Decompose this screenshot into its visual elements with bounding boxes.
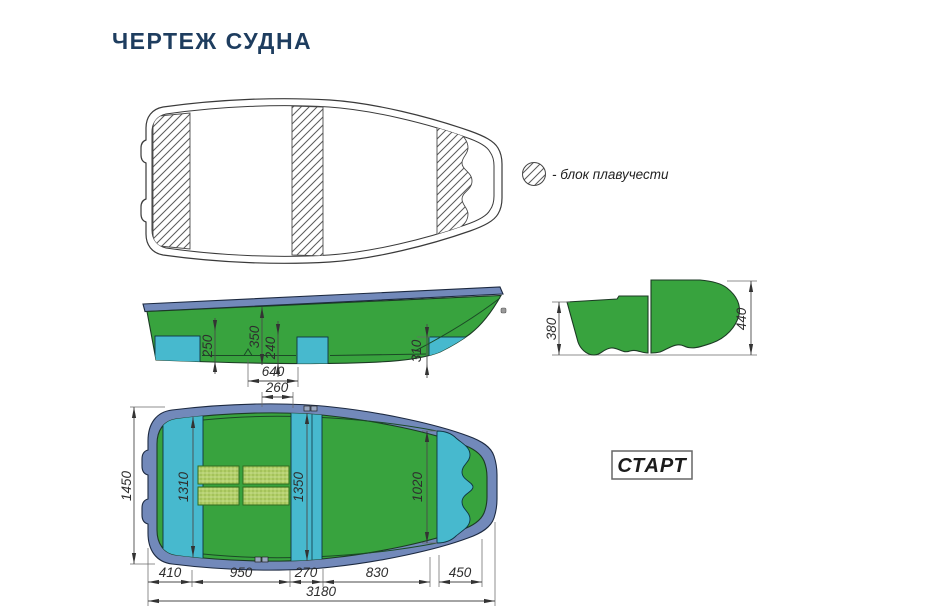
boat-drawing-page: ЧЕРТЕЖ СУДНА	[0, 0, 930, 615]
side-view	[143, 287, 506, 365]
dim-stern-block-height: 250	[200, 334, 215, 358]
bow-eyelet	[501, 308, 506, 313]
dim-transom-height: 380	[544, 317, 559, 340]
buoyancy-hatch-icon	[523, 163, 546, 186]
mid-buoyancy-block-hatched	[292, 106, 323, 256]
floor-grating	[243, 487, 289, 505]
section-midship-half	[651, 280, 740, 353]
dim-bow-block-width: 1020	[410, 471, 425, 502]
plan-view	[142, 404, 497, 570]
section-transom-half	[567, 296, 648, 355]
dim-bow-block-height: 310	[409, 339, 424, 362]
oarlock-socket	[255, 557, 261, 562]
dim-depth-amidships: 350	[247, 325, 262, 348]
top-view	[141, 99, 502, 264]
oarlock-socket	[311, 406, 317, 411]
floor-grating	[198, 466, 239, 484]
dim-mid-seat-segment: 270	[294, 565, 318, 580]
oarlock-socket	[304, 406, 310, 411]
section-view: 380 440	[544, 280, 757, 355]
dim-bow-block-segment: 450	[449, 565, 472, 580]
dim-mid-block-height: 240	[263, 336, 278, 360]
dim-floor-between-blocks: 640	[262, 364, 285, 379]
dim-stern-block-width: 1310	[176, 471, 191, 502]
floor-grating	[198, 487, 239, 505]
stern-buoyancy-block-hatched	[153, 113, 190, 249]
bow-buoyancy-block-hatched	[437, 126, 472, 236]
model-name: СТАРТ	[617, 455, 687, 477]
dim-overall-length: 3180	[306, 584, 337, 599]
model-badge: СТАРТ	[612, 451, 692, 479]
dim-stern-segment: 410	[159, 565, 182, 580]
plan-bow-block	[437, 431, 473, 543]
dim-mid-block-width: 1350	[291, 471, 306, 502]
boat-drawing: - блок плавучести 250 350	[0, 0, 930, 615]
legend: - блок плавучести	[523, 163, 670, 186]
legend-label: - блок плавучести	[552, 167, 669, 182]
side-stern-block	[155, 336, 200, 363]
oarlock-socket	[262, 557, 268, 562]
dim-oarlock-offset: 260	[265, 380, 289, 395]
floor-grating	[243, 466, 289, 484]
dim-overall-beam: 1450	[119, 470, 134, 501]
dim-cockpit-segment: 950	[230, 565, 253, 580]
side-mid-block	[297, 337, 328, 365]
side-bow-block	[429, 337, 470, 365]
dim-bow-segment: 830	[366, 565, 389, 580]
dim-midship-height: 440	[734, 307, 749, 330]
